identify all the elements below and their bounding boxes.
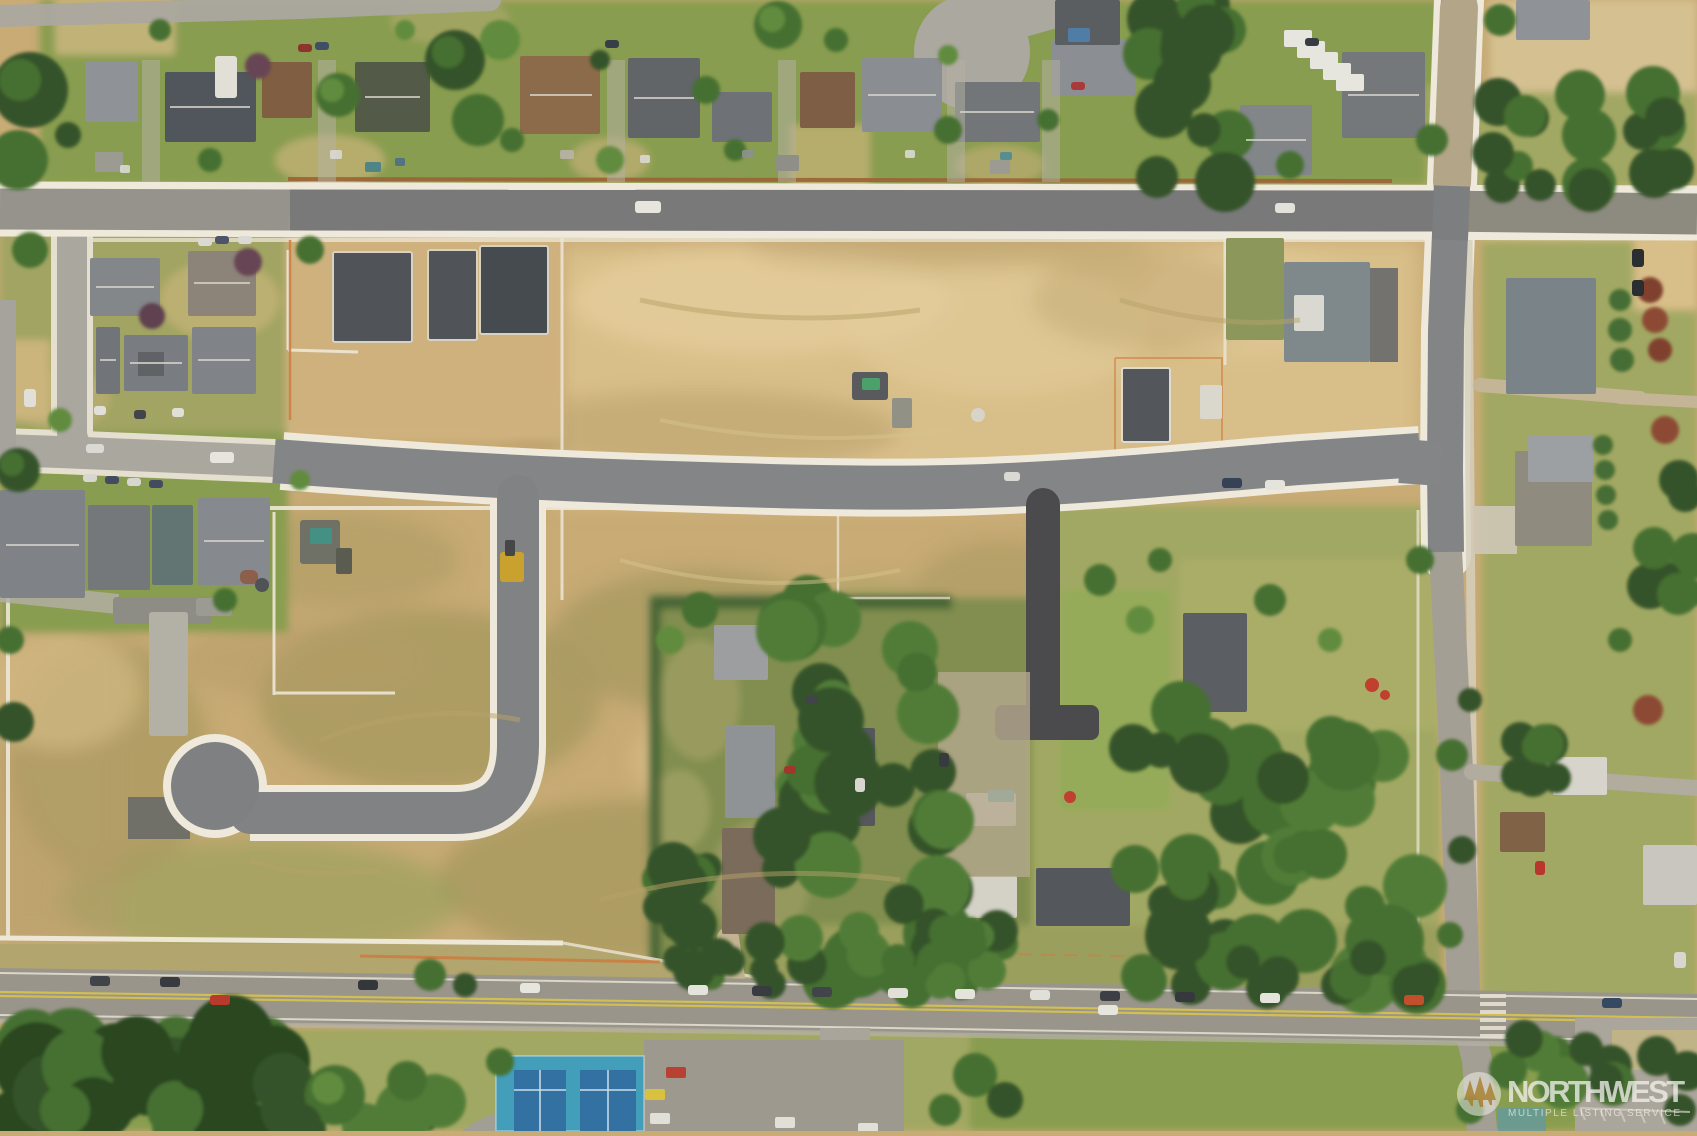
svg-text:MULTIPLE LISTING SERVICE: MULTIPLE LISTING SERVICE (1508, 1108, 1680, 1119)
svg-text:NORTHWEST: NORTHWEST (1507, 1074, 1685, 1109)
